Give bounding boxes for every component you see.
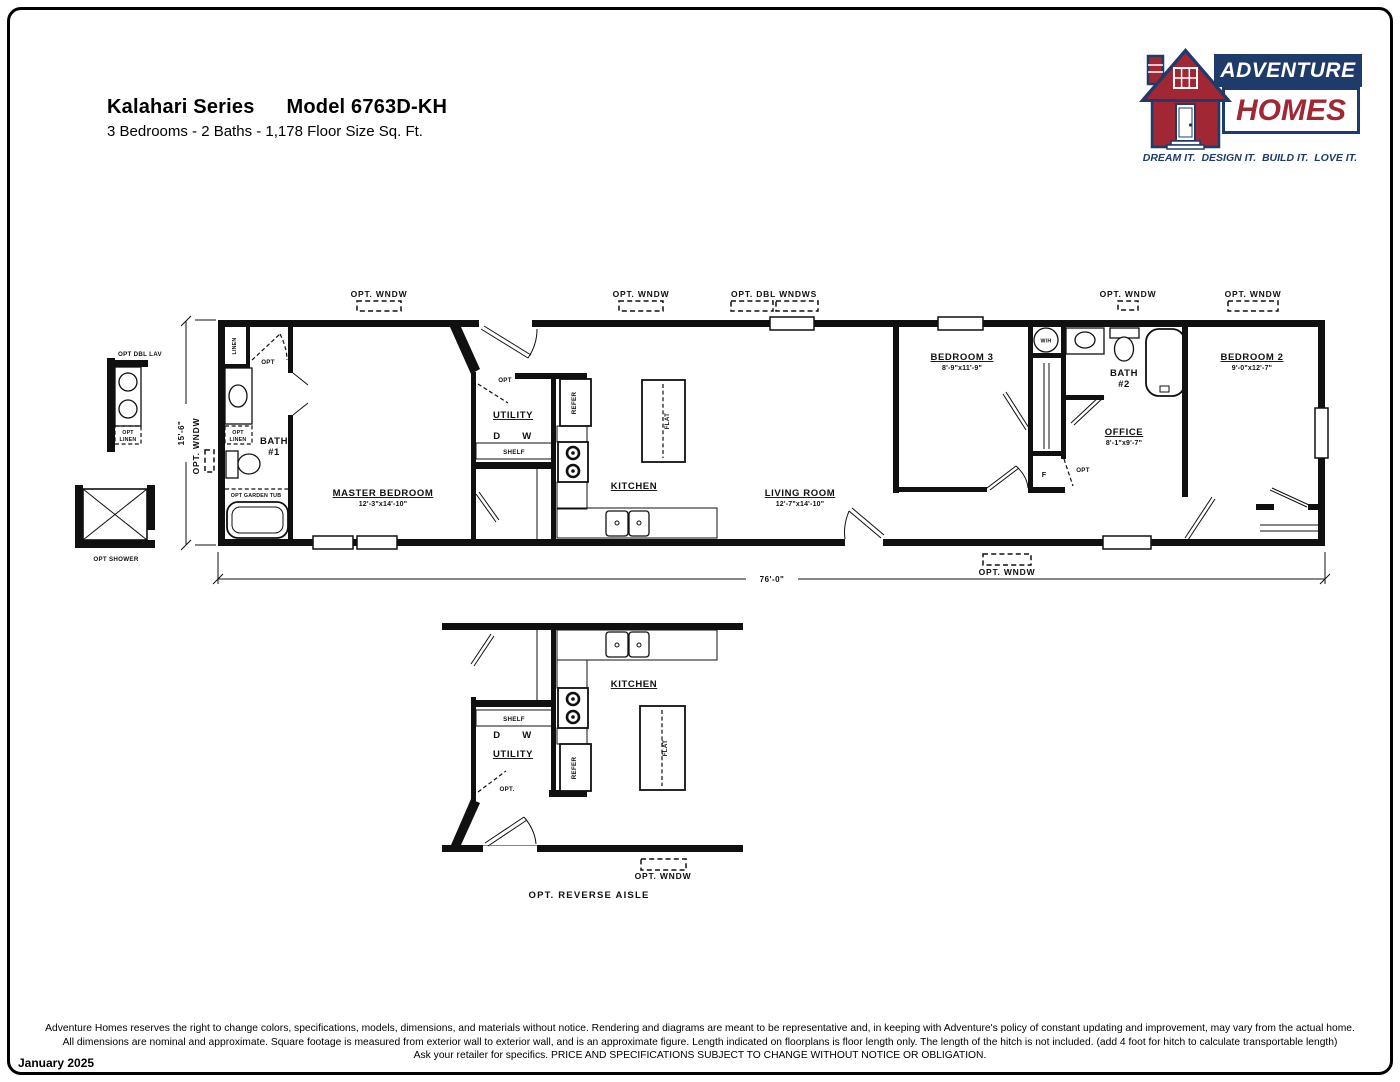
opt-door-label: OPT (261, 359, 275, 366)
opt-window-callouts-top: OPT. WNDW OPT. WNDW OPT. DBL WNDWS OPT. … (351, 289, 1282, 311)
alt-room-label-kitchen: KITCHEN (611, 679, 657, 690)
kitchen-area: REFER FLAT KITCHEN (551, 377, 717, 539)
bath1-area: LINEN OPT OPT LINEN BATH #1 OPT GARDEN T… (225, 327, 308, 546)
alt-plan-caption: OPT. REVERSE AISLE (528, 890, 649, 901)
bedroom3: BEDROOM 3 8'-9"x11'-9" (893, 327, 1028, 493)
furnace-opt-label: OPT (1076, 467, 1090, 474)
disclaimer-line3: Ask your retailer for specifics. PRICE A… (0, 1049, 1400, 1063)
label-opt-shower: OPT SHOWER (93, 556, 139, 563)
opt-linen-label-1: OPT (232, 430, 244, 436)
alt-dryer-label: D (493, 730, 500, 741)
room-size-master: 12'-3"x14'-10" (359, 501, 408, 508)
alt-refer-label: REFER (571, 757, 578, 780)
disclaimer: Adventure Homes reserves the right to ch… (0, 1022, 1400, 1063)
room-size-living: 12'-7"x14'-10" (776, 501, 825, 508)
disclaimer-line2: All dimensions are nominal and approxima… (0, 1036, 1400, 1050)
linen-closet-label: LINEN (232, 338, 238, 355)
utility-room: OPT UTILITY D W SHELF (450, 327, 587, 546)
room-label-master: MASTER BEDROOM (333, 488, 434, 499)
reverse-aisle-plan: SHELF D W UTILITY OPT. (442, 623, 743, 901)
wh-label: W/H (1041, 339, 1052, 345)
label-opt-wndw-3: OPT. WNDW (1100, 289, 1157, 299)
alt-utility: SHELF D W UTILITY OPT. (451, 630, 555, 845)
alt-opt-window-callout: OPT. WNDW (635, 859, 692, 881)
label-opt-wndw-4: OPT. WNDW (1225, 289, 1282, 299)
room-label-bath2-num: #2 (1118, 379, 1130, 390)
dryer-label: D (493, 431, 500, 442)
opt-shower-detail: OPT SHOWER (75, 485, 155, 563)
flat-label: FLAT (664, 413, 671, 430)
alt-room-label-utility: UTILITY (493, 749, 533, 760)
label-opt-dbl-wndws: OPT. DBL WNDWS (731, 289, 817, 299)
bedroom2: BEDROOM 2 9'-0"x12'-7" (1182, 327, 1320, 540)
bath1-toilet-tank (226, 451, 238, 478)
room-label-bed2: BEDROOM 2 (1221, 352, 1284, 363)
room-label-kitchen: KITCHEN (611, 481, 657, 492)
room-label-bath1-num: #1 (268, 447, 280, 458)
label-opt-wndw-6: OPT. WNDW (191, 417, 201, 474)
floorplan-sheet: Kalahari SeriesModel 6763D-KH 3 Bedrooms… (0, 0, 1400, 1082)
label-opt-wndw-7: OPT. WNDW (635, 871, 692, 881)
bath1-sink (229, 385, 247, 407)
room-label-utility: UTILITY (493, 410, 533, 421)
plan-length-dim: 76'-0" (760, 575, 785, 584)
plan-width-dim: 15'-6" (177, 421, 186, 446)
office: OFFICE 8'-1"x9'-7" (1105, 427, 1143, 447)
opt-dbl-lav-detail: OPT DBL LAV OPT LINEN (107, 351, 163, 452)
entry-door (481, 326, 537, 358)
disclaimer-line1: Adventure Homes reserves the right to ch… (0, 1022, 1400, 1036)
room-label-living: LIVING ROOM (765, 488, 835, 499)
kitchen-sink (606, 511, 628, 536)
main-floor-plan: LINEN OPT OPT LINEN BATH #1 OPT GARDEN T… (75, 289, 1330, 585)
label-opt-dbl-lav: OPT DBL LAV (118, 351, 163, 358)
room-label-office: OFFICE (1105, 427, 1143, 438)
room-size-bed3: 8'-9"x11'-9" (942, 365, 982, 372)
room-label-bath1: BATH (260, 436, 288, 447)
bath2-toilet-bowl (1115, 337, 1134, 361)
alt-shelf-label: SHELF (503, 716, 525, 723)
label-opt-wndw-5: OPT. WNDW (979, 567, 1036, 577)
refer-label: REFER (571, 392, 578, 415)
alt-entry-door (485, 817, 536, 846)
alt-flat-label: FLAT (662, 740, 669, 757)
rear-door-opening (845, 538, 883, 548)
label-opt-wndw-1: OPT. WNDW (351, 289, 408, 299)
bath1-toilet-bowl (238, 454, 260, 474)
entry-door-opening (479, 319, 532, 329)
furnace-label: F (1042, 472, 1047, 479)
dbl-lav-opt-label: OPT (122, 430, 134, 436)
alt-washer-label: W (522, 730, 532, 741)
opt-linen-label-2: LINEN (230, 437, 247, 443)
dbl-lav-linen-label: LINEN (120, 437, 137, 443)
room-size-office: 8'-1"x9'-7" (1106, 440, 1142, 447)
living-room: LIVING ROOM 12'-7"x14'-10" (765, 488, 884, 539)
shelf-label: SHELF (503, 449, 525, 456)
opt-garden-tub-label: OPT GARDEN TUB (231, 493, 281, 499)
room-label-bed3: BEDROOM 3 (931, 352, 994, 363)
bath2-sink (1075, 332, 1095, 348)
alt-kitchen: REFER FLAT KITCHEN (549, 630, 717, 797)
master-bedroom: MASTER BEDROOM 12'-3"x14'-10" (333, 488, 434, 508)
utility-opt-door-label: OPT (498, 377, 512, 384)
room-size-bed2: 9'-0"x12'-7" (1232, 365, 1272, 372)
alt-opt-door-label: OPT. (500, 786, 515, 793)
date-stamp: January 2025 (18, 1056, 94, 1070)
floor-plan-drawing: LINEN OPT OPT LINEN BATH #1 OPT GARDEN T… (0, 0, 1400, 1082)
opt-window-callout-bottom: OPT. WNDW (979, 554, 1036, 577)
opt-window-callout-left: OPT. WNDW (191, 417, 214, 474)
label-opt-wndw-2: OPT. WNDW (613, 289, 670, 299)
room-label-bath2: BATH (1110, 368, 1138, 379)
washer-label: W (522, 431, 532, 442)
